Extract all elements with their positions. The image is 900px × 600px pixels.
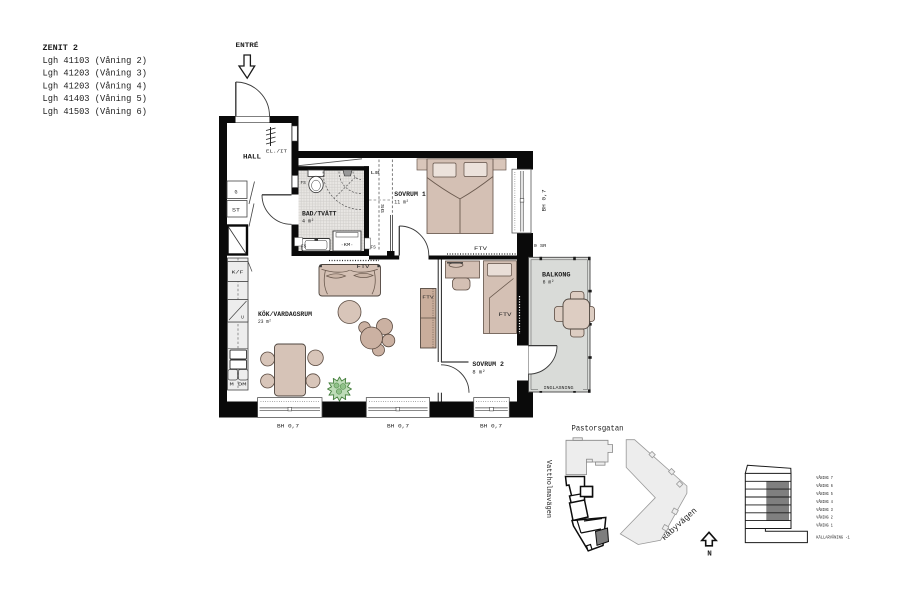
svg-text:Lgh 41203 (Våning 3): Lgh 41203 (Våning 3) xyxy=(43,69,148,79)
svg-text:·KM·: ·KM· xyxy=(341,242,354,248)
svg-text:11 m²: 11 m² xyxy=(394,200,409,206)
svg-text:ENTRÉ: ENTRÉ xyxy=(236,41,259,49)
svg-text:ST: ST xyxy=(232,208,240,214)
svg-text:Lgh 41103 (Våning 2): Lgh 41103 (Våning 2) xyxy=(43,56,148,66)
svg-text:VÅNING 6: VÅNING 6 xyxy=(816,482,833,489)
svg-text:BH 0,7: BH 0,7 xyxy=(387,423,409,430)
svg-text:FTV: FTV xyxy=(422,295,434,301)
svg-text:FS: FS xyxy=(301,245,307,250)
svg-text:23 m²: 23 m² xyxy=(258,319,272,325)
svg-text:FS: FS xyxy=(371,246,377,251)
svg-text:FTV: FTV xyxy=(499,312,512,318)
svg-text:SOVRUM 2: SOVRUM 2 xyxy=(472,361,504,369)
svg-text:FS: FS xyxy=(301,181,307,186)
svg-text:Lgh 41503 (Våning 6): Lgh 41503 (Våning 6) xyxy=(43,107,148,117)
svg-text:4 m²: 4 m² xyxy=(302,219,314,225)
svg-text:FTV: FTV xyxy=(357,264,370,270)
svg-text:BALKONG: BALKONG xyxy=(542,272,571,279)
svg-text:KÄLLARVÅNING -1: KÄLLARVÅNING -1 xyxy=(816,534,850,541)
svg-text:VÅNING 2: VÅNING 2 xyxy=(816,514,833,521)
svg-text:Lgh 41203 (Våning 4): Lgh 41203 (Våning 4) xyxy=(43,81,148,91)
svg-text:EL./IT: EL./IT xyxy=(266,149,287,155)
svg-text:Lgh 41403 (Våning 5): Lgh 41403 (Våning 5) xyxy=(43,94,148,104)
svg-text:G: G xyxy=(234,190,237,196)
svg-text:BH 0,7: BH 0,7 xyxy=(480,423,502,430)
svg-text:6 m²: 6 m² xyxy=(543,280,555,286)
svg-text:M DM: M DM xyxy=(230,382,247,388)
svg-text:SG: SG xyxy=(379,204,385,213)
svg-text:KÖK/VARDAGSRUM: KÖK/VARDAGSRUM xyxy=(258,310,312,319)
svg-text:HALL: HALL xyxy=(243,154,261,161)
svg-text:VÅNING 3: VÅNING 3 xyxy=(816,506,833,513)
svg-text:VÅNING 7: VÅNING 7 xyxy=(816,474,833,481)
svg-text:Pastorsgatan: Pastorsgatan xyxy=(572,424,624,434)
svg-text:VÅNING 4: VÅNING 4 xyxy=(816,498,833,505)
svg-text:SOVRUM 1: SOVRUM 1 xyxy=(394,191,426,199)
svg-text:LB: LB xyxy=(371,170,380,176)
svg-text:VÅNING 1: VÅNING 1 xyxy=(816,522,833,529)
svg-text:8 m²: 8 m² xyxy=(472,370,485,376)
svg-text:FTV: FTV xyxy=(474,246,487,252)
svg-text:BAD/TVÄTT: BAD/TVÄTT xyxy=(302,210,337,218)
svg-text:Vattholmavägen: Vattholmavägen xyxy=(544,460,552,518)
svg-text:VÅNING 5: VÅNING 5 xyxy=(816,490,833,497)
svg-text:U: U xyxy=(241,315,244,321)
svg-text:ZENIT 2: ZENIT 2 xyxy=(43,43,79,53)
svg-text:INGLASNING: INGLASNING xyxy=(544,385,574,391)
svg-text:K/F: K/F xyxy=(232,270,244,276)
svg-text:N: N xyxy=(707,551,712,559)
svg-text:BH 0,7: BH 0,7 xyxy=(277,423,299,430)
svg-text:BH 0,7: BH 0,7 xyxy=(541,190,548,212)
svg-text:0 SR: 0 SR xyxy=(534,243,547,249)
